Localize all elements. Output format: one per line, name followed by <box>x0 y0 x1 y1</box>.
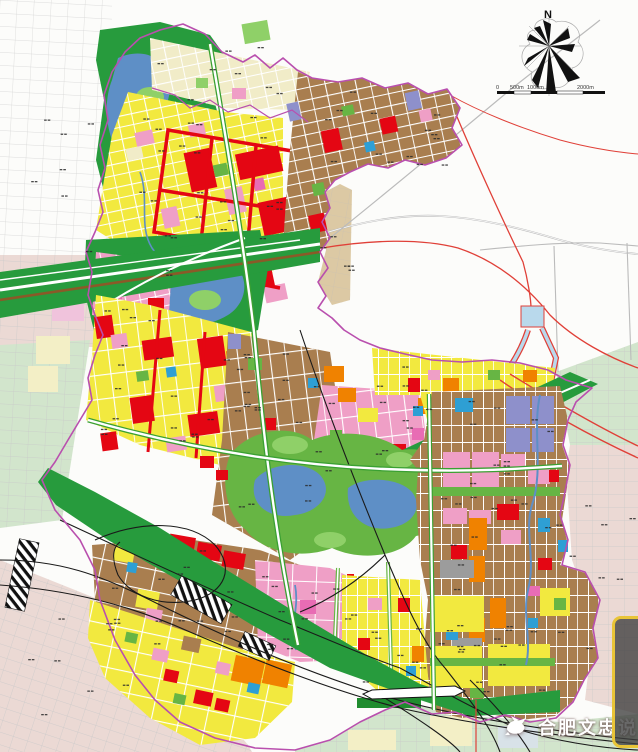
rect-shape <box>562 632 565 633</box>
rect-shape <box>494 408 497 409</box>
rect-shape <box>326 470 329 471</box>
rect-shape <box>507 626 510 627</box>
rect-shape <box>443 472 470 488</box>
rect-shape <box>283 380 286 381</box>
rect-shape <box>123 685 126 686</box>
rect-shape <box>101 429 104 430</box>
rect-shape <box>196 124 199 125</box>
ellipse-shape <box>386 452 414 468</box>
rect-shape <box>213 69 216 70</box>
rect-shape <box>487 691 490 692</box>
rect-shape <box>91 691 94 692</box>
rect-shape <box>152 320 155 321</box>
rect-shape <box>305 618 308 619</box>
rect-shape <box>41 714 44 715</box>
rect-shape <box>495 508 498 509</box>
rect-shape <box>121 345 124 346</box>
rect-shape <box>402 366 405 367</box>
rect-shape <box>192 123 195 124</box>
rect-shape <box>421 390 424 391</box>
rect-shape <box>159 621 162 622</box>
rect-shape <box>196 78 208 88</box>
rect-shape <box>232 616 235 617</box>
rect-shape <box>332 403 335 404</box>
rect-shape <box>408 378 420 392</box>
rect-shape <box>345 618 348 619</box>
rect-shape <box>136 370 149 382</box>
rect-shape <box>276 202 279 203</box>
rect-shape <box>117 619 120 620</box>
rect-shape <box>208 419 211 420</box>
rect-shape <box>312 592 315 593</box>
rect-shape <box>483 691 486 692</box>
rect-shape <box>344 266 347 267</box>
rect-shape <box>171 427 174 428</box>
text-shape: 2000m <box>577 85 594 91</box>
rect-shape <box>372 632 375 633</box>
rect-shape <box>474 483 477 484</box>
rect-shape <box>265 649 268 650</box>
rect-shape <box>278 399 281 400</box>
rect-shape <box>112 588 115 589</box>
rect-shape <box>122 309 125 310</box>
rect-shape <box>412 662 415 663</box>
rect-shape <box>469 518 487 550</box>
side-overlay-panel[interactable] <box>612 616 638 748</box>
rect-shape <box>423 667 426 668</box>
rect-shape <box>258 407 261 408</box>
rect-shape <box>330 236 333 237</box>
rect-shape <box>63 169 66 170</box>
rect-shape <box>462 564 465 565</box>
rect-shape <box>174 237 177 238</box>
rect-shape <box>228 334 241 349</box>
rect-shape <box>478 645 481 646</box>
rect-shape <box>412 428 424 440</box>
rect-shape <box>410 156 413 157</box>
rect-shape <box>88 123 91 124</box>
rect-shape <box>250 117 253 118</box>
rect-shape <box>351 266 354 267</box>
rect-shape <box>181 573 184 574</box>
rect-shape <box>158 63 161 64</box>
rect-shape <box>115 388 118 389</box>
rect-shape <box>242 506 245 507</box>
rect-shape <box>247 406 250 407</box>
rect-shape <box>445 498 448 499</box>
rect-shape <box>91 123 94 124</box>
rect-shape <box>419 108 433 122</box>
rect-shape <box>112 629 115 630</box>
rect-shape <box>154 643 157 644</box>
rect-shape <box>590 648 593 649</box>
rect-shape <box>28 366 58 392</box>
rect-shape <box>416 662 419 663</box>
rect-shape <box>494 465 497 466</box>
rect-shape <box>506 396 530 424</box>
map-canvas: N 0 500m 1000m 2000m <box>0 0 638 752</box>
rect-shape <box>557 91 583 94</box>
rect-shape <box>196 216 199 217</box>
rect-shape <box>269 87 272 88</box>
rect-shape <box>439 643 442 644</box>
rect-shape <box>135 589 160 611</box>
rect-shape <box>430 487 560 496</box>
rect-shape <box>199 216 202 217</box>
rect-shape <box>287 648 290 649</box>
rect-shape <box>300 600 316 614</box>
rect-shape <box>300 422 303 423</box>
rect-shape <box>271 644 274 645</box>
rect-shape <box>488 370 500 380</box>
rect-shape <box>133 317 136 318</box>
rect-shape <box>573 556 576 557</box>
rect-shape <box>224 201 227 202</box>
rect-shape <box>420 628 423 629</box>
rect-shape <box>162 579 165 580</box>
rect-shape <box>48 120 51 121</box>
rect-shape <box>425 390 428 391</box>
rect-shape <box>280 209 283 210</box>
rect-shape <box>228 631 231 632</box>
rect-shape <box>224 359 227 360</box>
rect-shape <box>232 220 235 221</box>
rect-shape <box>472 401 475 402</box>
rect-shape <box>474 497 477 498</box>
rect-shape <box>248 504 251 505</box>
rect-shape <box>416 628 419 629</box>
rect-shape <box>375 638 378 639</box>
rect-shape <box>174 396 177 397</box>
rect-shape <box>463 649 466 650</box>
rect-shape <box>474 645 477 646</box>
rect-shape <box>406 385 409 386</box>
rect-shape <box>376 154 379 155</box>
rect-shape <box>510 630 513 631</box>
rect-shape <box>534 631 537 632</box>
rect-shape <box>458 564 461 565</box>
rect-shape <box>198 152 201 153</box>
rect-shape <box>244 392 247 393</box>
rect-shape <box>386 450 389 451</box>
rect-shape <box>391 162 394 163</box>
rect-shape <box>420 667 423 668</box>
rect-shape <box>187 567 190 568</box>
rect-shape <box>457 625 460 626</box>
rect-shape <box>220 201 223 202</box>
rect-shape <box>171 396 174 397</box>
rect-shape <box>358 638 370 650</box>
rect-shape <box>244 406 247 407</box>
rect-shape <box>440 560 474 578</box>
rect-shape <box>417 164 420 165</box>
rect-shape <box>469 401 472 402</box>
rect-shape <box>196 436 199 437</box>
rect-shape <box>165 235 168 236</box>
rect-shape <box>398 598 410 612</box>
rect-shape <box>406 420 409 421</box>
rect-shape <box>450 545 453 546</box>
rect-shape <box>538 518 550 532</box>
rect-shape <box>200 550 203 551</box>
rect-shape <box>318 386 321 387</box>
rect-shape <box>32 659 35 660</box>
rect-shape <box>617 579 620 580</box>
rect-shape <box>351 614 354 615</box>
text-shape: 0 <box>496 85 499 91</box>
rect-shape <box>525 503 528 504</box>
rect-shape <box>86 251 89 252</box>
rect-shape <box>258 409 261 410</box>
rect-shape <box>266 87 269 88</box>
rect-shape <box>147 118 150 119</box>
rect-shape <box>331 161 334 162</box>
rect-shape <box>348 730 396 750</box>
rect-shape <box>261 137 264 138</box>
rect-shape <box>490 598 506 628</box>
rect-shape <box>179 440 182 441</box>
rect-shape <box>254 117 257 118</box>
rect-shape <box>44 120 47 121</box>
rect-shape <box>501 646 504 647</box>
rect-shape <box>108 629 111 630</box>
rect-shape <box>149 320 152 321</box>
rect-shape <box>457 646 460 647</box>
rect-shape <box>110 623 113 624</box>
rect-shape <box>187 411 220 437</box>
rect-shape <box>445 164 448 165</box>
rect-shape <box>406 366 409 367</box>
rect-shape <box>587 648 590 649</box>
text-shape: 1000m <box>527 85 544 91</box>
rect-shape <box>45 714 48 715</box>
rect-shape <box>459 503 462 504</box>
rect-shape <box>384 402 387 403</box>
rect-shape <box>498 408 501 409</box>
rect-shape <box>283 353 286 354</box>
rect-shape <box>162 150 165 151</box>
rect-shape <box>329 119 332 120</box>
rect-shape <box>201 621 204 622</box>
rect-shape <box>158 643 161 644</box>
rect-shape <box>366 681 369 682</box>
rect-shape <box>228 220 231 221</box>
rect-shape <box>355 614 358 615</box>
rect-shape <box>227 591 230 592</box>
rect-shape <box>316 451 319 452</box>
rect-shape <box>200 456 214 468</box>
rect-shape <box>235 73 238 74</box>
rect-shape <box>61 195 64 196</box>
rect-shape <box>334 236 337 237</box>
rect-shape <box>437 138 440 139</box>
rect-shape <box>261 47 264 48</box>
rect-shape <box>320 247 323 248</box>
rect-shape <box>554 598 566 610</box>
rect-shape <box>235 616 238 617</box>
rect-shape <box>438 114 441 115</box>
rect-shape <box>305 485 308 486</box>
rect-shape <box>151 200 154 201</box>
rect-shape <box>248 357 251 358</box>
rect-shape <box>211 419 214 420</box>
rect-shape <box>244 354 247 355</box>
rect-shape <box>154 200 157 201</box>
rect-shape <box>237 369 240 370</box>
rect-shape <box>461 625 464 626</box>
rect-shape <box>194 152 197 153</box>
rect-shape <box>319 451 322 452</box>
rect-shape <box>522 644 525 645</box>
rect-shape <box>197 192 200 193</box>
rect-shape <box>497 91 514 94</box>
rect-shape <box>36 336 70 364</box>
rect-shape <box>620 579 623 580</box>
rect-shape <box>348 266 351 267</box>
rect-shape <box>158 579 161 580</box>
rect-shape <box>379 638 382 639</box>
rect-shape <box>472 536 475 537</box>
rect-shape <box>159 129 162 130</box>
rect-shape <box>413 407 416 408</box>
rect-shape <box>462 651 465 652</box>
rect-shape <box>337 110 340 111</box>
rect-shape <box>560 525 563 526</box>
rect-shape <box>139 192 142 193</box>
rect-shape <box>302 618 305 619</box>
rect-shape <box>549 470 559 482</box>
rect-shape <box>442 164 445 165</box>
rect-shape <box>523 370 537 382</box>
rect-shape <box>105 434 108 435</box>
rect-shape <box>315 592 318 593</box>
rect-shape <box>429 130 432 131</box>
rect-shape <box>28 659 31 660</box>
rect-shape <box>263 238 266 239</box>
rect-shape <box>238 73 241 74</box>
rect-shape <box>447 630 450 631</box>
rect-shape <box>431 134 434 135</box>
rect-shape <box>262 576 265 577</box>
rect-shape <box>260 238 263 239</box>
rect-shape <box>168 235 171 236</box>
rect-shape <box>280 202 283 203</box>
rect-shape <box>183 145 186 146</box>
rect-shape <box>401 655 404 656</box>
rect-shape <box>630 518 633 519</box>
rect-shape <box>305 500 308 501</box>
rect-shape <box>454 545 457 546</box>
rect-shape <box>492 508 495 509</box>
rect-shape <box>210 69 213 70</box>
rect-shape <box>434 138 437 139</box>
rect-shape <box>518 644 521 645</box>
rect-shape <box>507 473 510 474</box>
rect-shape <box>504 473 507 474</box>
rect-shape <box>470 688 484 698</box>
rect-shape <box>430 658 555 666</box>
rect-shape <box>264 137 267 138</box>
rect-shape <box>255 409 258 410</box>
rect-shape <box>179 145 182 146</box>
rect-shape <box>192 436 195 437</box>
rect-shape <box>192 434 195 435</box>
rect-shape <box>532 419 535 420</box>
rect-shape <box>501 530 521 544</box>
rect-shape <box>535 419 538 420</box>
rect-shape <box>494 638 497 639</box>
rect-shape <box>179 620 182 621</box>
rect-shape <box>197 621 200 622</box>
rect-shape <box>65 195 68 196</box>
rect-shape <box>363 681 366 682</box>
rect-shape <box>417 407 420 408</box>
rect-shape <box>451 545 467 559</box>
rect-shape <box>161 63 164 64</box>
rect-shape <box>381 386 384 387</box>
rect-shape <box>252 504 255 505</box>
rect-shape <box>125 345 128 346</box>
rect-shape <box>143 192 146 193</box>
rect-shape <box>296 422 299 423</box>
rect-shape <box>379 116 398 135</box>
rect-shape <box>277 93 280 94</box>
rect-shape <box>114 619 117 620</box>
rect-shape <box>545 527 548 528</box>
rect-shape <box>337 588 340 589</box>
rect-shape <box>119 388 122 389</box>
rect-shape <box>59 618 62 619</box>
rect-shape <box>195 434 198 435</box>
rect-shape <box>601 524 604 525</box>
ellipse-shape <box>272 436 308 454</box>
rect-shape <box>126 309 129 310</box>
rect-shape <box>309 485 312 486</box>
rect-shape <box>268 649 271 650</box>
rect-shape <box>266 576 269 577</box>
rect-shape <box>271 206 274 207</box>
rect-shape <box>514 91 531 94</box>
rect-shape <box>549 527 552 528</box>
rect-shape <box>497 465 500 466</box>
rect-shape <box>201 192 204 193</box>
rect-shape <box>368 598 382 610</box>
rect-shape <box>521 503 524 504</box>
rect-shape <box>504 461 507 462</box>
rect-shape <box>170 275 173 276</box>
rect-shape <box>434 114 437 115</box>
rect-shape <box>455 398 473 412</box>
rect-shape <box>352 270 355 271</box>
rect-shape <box>62 618 65 619</box>
rect-shape <box>105 429 108 430</box>
rect-shape <box>430 596 484 632</box>
rect-shape <box>255 407 258 408</box>
rect-shape <box>476 682 479 683</box>
rect-shape <box>430 409 433 410</box>
rect-shape <box>507 461 510 462</box>
rect-shape <box>0 0 112 268</box>
rect-shape <box>504 465 507 466</box>
rect-shape <box>480 682 483 683</box>
rect-shape <box>374 113 377 114</box>
rect-shape <box>106 623 109 624</box>
rect-shape <box>397 655 400 656</box>
rect-shape <box>570 556 573 557</box>
rect-shape <box>474 424 477 425</box>
rect-shape <box>122 364 125 365</box>
rect-shape <box>225 51 228 52</box>
